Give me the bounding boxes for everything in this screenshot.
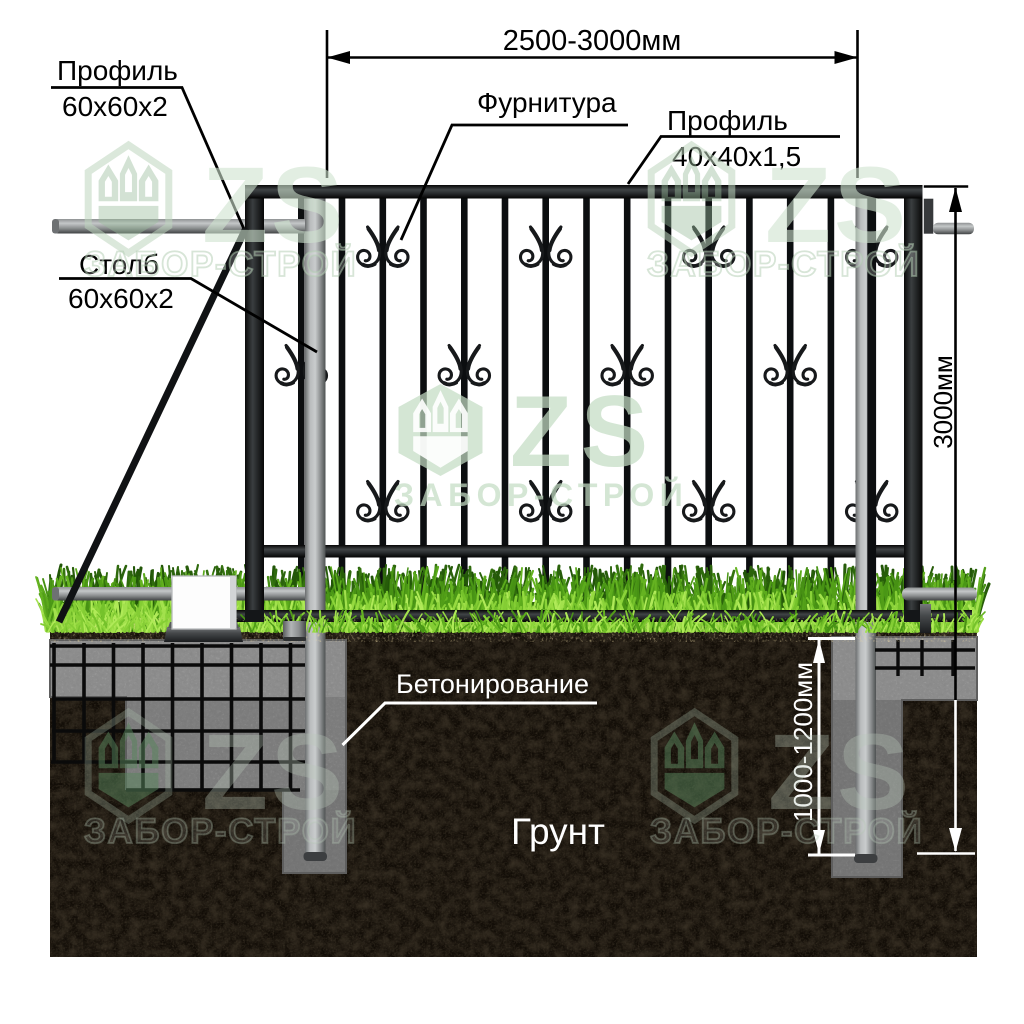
svg-text:Профиль: Профиль (667, 105, 788, 136)
svg-text:3000мм: 3000мм (928, 355, 958, 449)
svg-text:2500-3000мм: 2500-3000мм (503, 25, 682, 57)
svg-text:Грунт: Грунт (511, 811, 605, 852)
svg-text:ЗАБОР-СТРОЙ: ЗАБОР-СТРОЙ (650, 811, 923, 851)
svg-text:ZS: ZS (510, 376, 657, 488)
svg-text:ЗАБОР-СТРОЙ: ЗАБОР-СТРОЙ (647, 244, 920, 284)
svg-text:Бетонирование: Бетонирование (396, 669, 589, 699)
svg-text:Профиль: Профиль (57, 55, 178, 86)
svg-text:60х60х2: 60х60х2 (62, 91, 168, 122)
svg-text:60х60х2: 60х60х2 (68, 283, 174, 314)
svg-text:Фурнитура: Фурнитура (477, 87, 617, 118)
svg-text:ЗАБОР-СТРОЙ: ЗАБОР-СТРОЙ (394, 477, 688, 513)
svg-text:ЗАБОР-СТРОЙ: ЗАБОР-СТРОЙ (84, 811, 357, 851)
svg-text:ЗАБОР-СТРОЙ: ЗАБОР-СТРОЙ (84, 244, 357, 284)
